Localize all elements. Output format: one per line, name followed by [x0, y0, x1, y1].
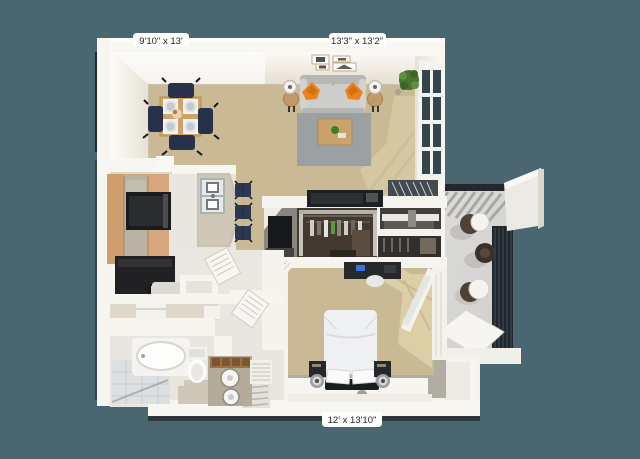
- svg-text:13'3" x 13'2": 13'3" x 13'2": [331, 36, 383, 47]
- svg-text:9'10" x 13': 9'10" x 13': [139, 36, 183, 47]
- svg-text:12' x 13'10": 12' x 13'10": [328, 415, 377, 426]
